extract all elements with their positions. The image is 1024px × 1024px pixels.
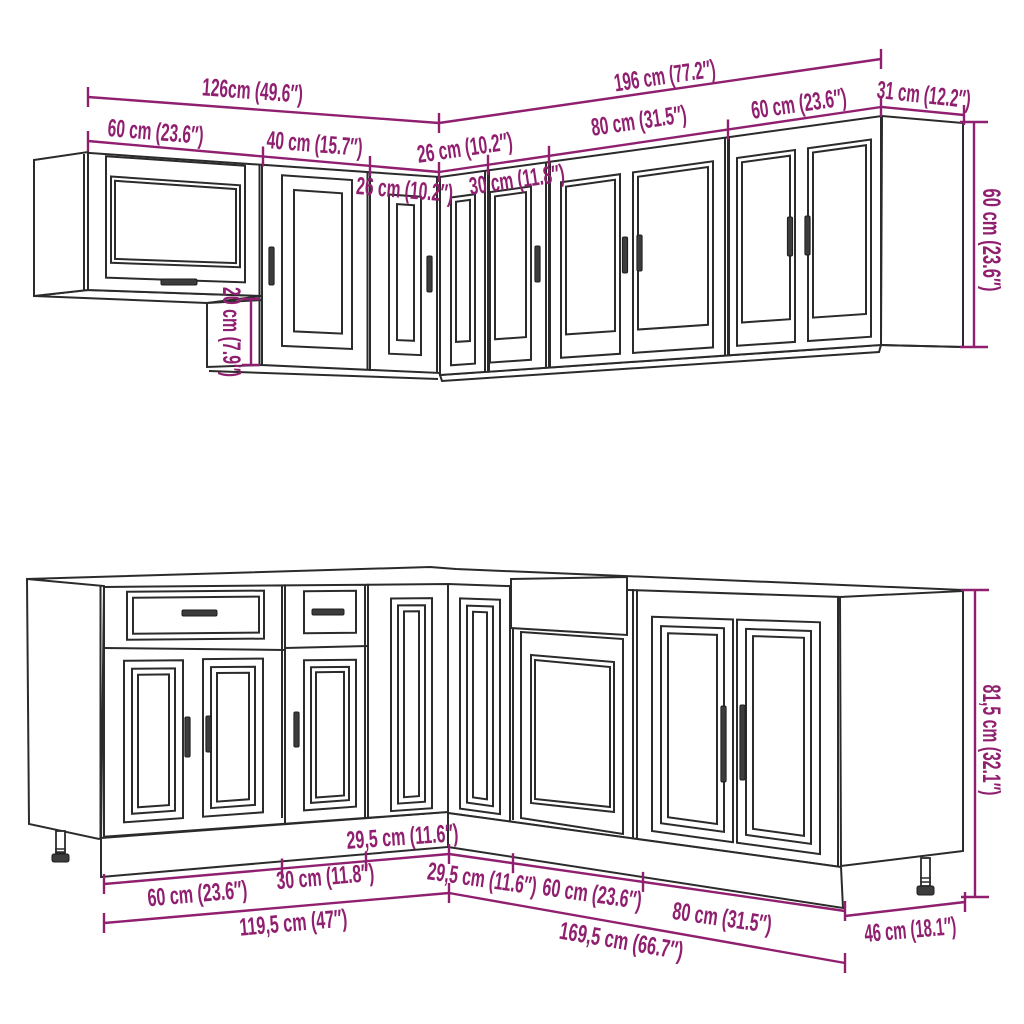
svg-text:20 cm (7.9″): 20 cm (7.9″) — [217, 287, 245, 377]
svg-text:60 cm (23.6″): 60 cm (23.6″) — [977, 189, 1005, 292]
svg-text:81,5 cm (32.1″): 81,5 cm (32.1″) — [977, 685, 1005, 796]
